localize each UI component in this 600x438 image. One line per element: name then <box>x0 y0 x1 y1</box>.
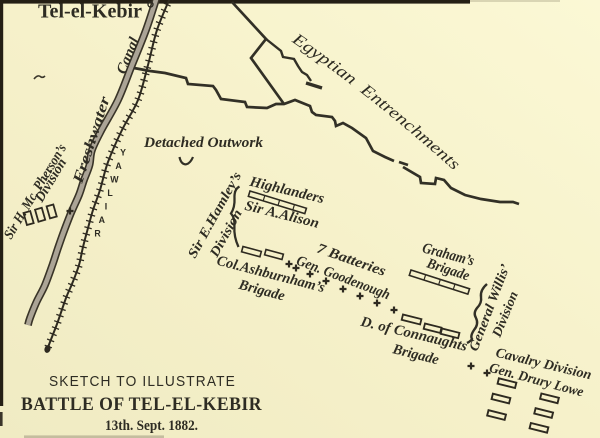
svg-text:Tel-el-Kebir: Tel-el-Kebir <box>38 2 142 23</box>
svg-text:BATTLE OF TEL-EL-KEBIR: BATTLE OF TEL-EL-KEBIR <box>21 395 262 415</box>
svg-text:SKETCH TO ILLUSTRATE: SKETCH TO ILLUSTRATE <box>49 374 236 390</box>
svg-text:R: R <box>94 229 101 239</box>
svg-text:W: W <box>110 175 119 185</box>
svg-text:Detached Outwork: Detached Outwork <box>143 135 264 151</box>
svg-text:L: L <box>107 188 113 198</box>
svg-text:I: I <box>105 202 107 212</box>
svg-text:Y: Y <box>120 148 126 158</box>
svg-text:A: A <box>99 215 106 225</box>
svg-text:13th. Sept. 1882.: 13th. Sept. 1882. <box>105 418 198 434</box>
svg-text:A: A <box>115 161 122 171</box>
